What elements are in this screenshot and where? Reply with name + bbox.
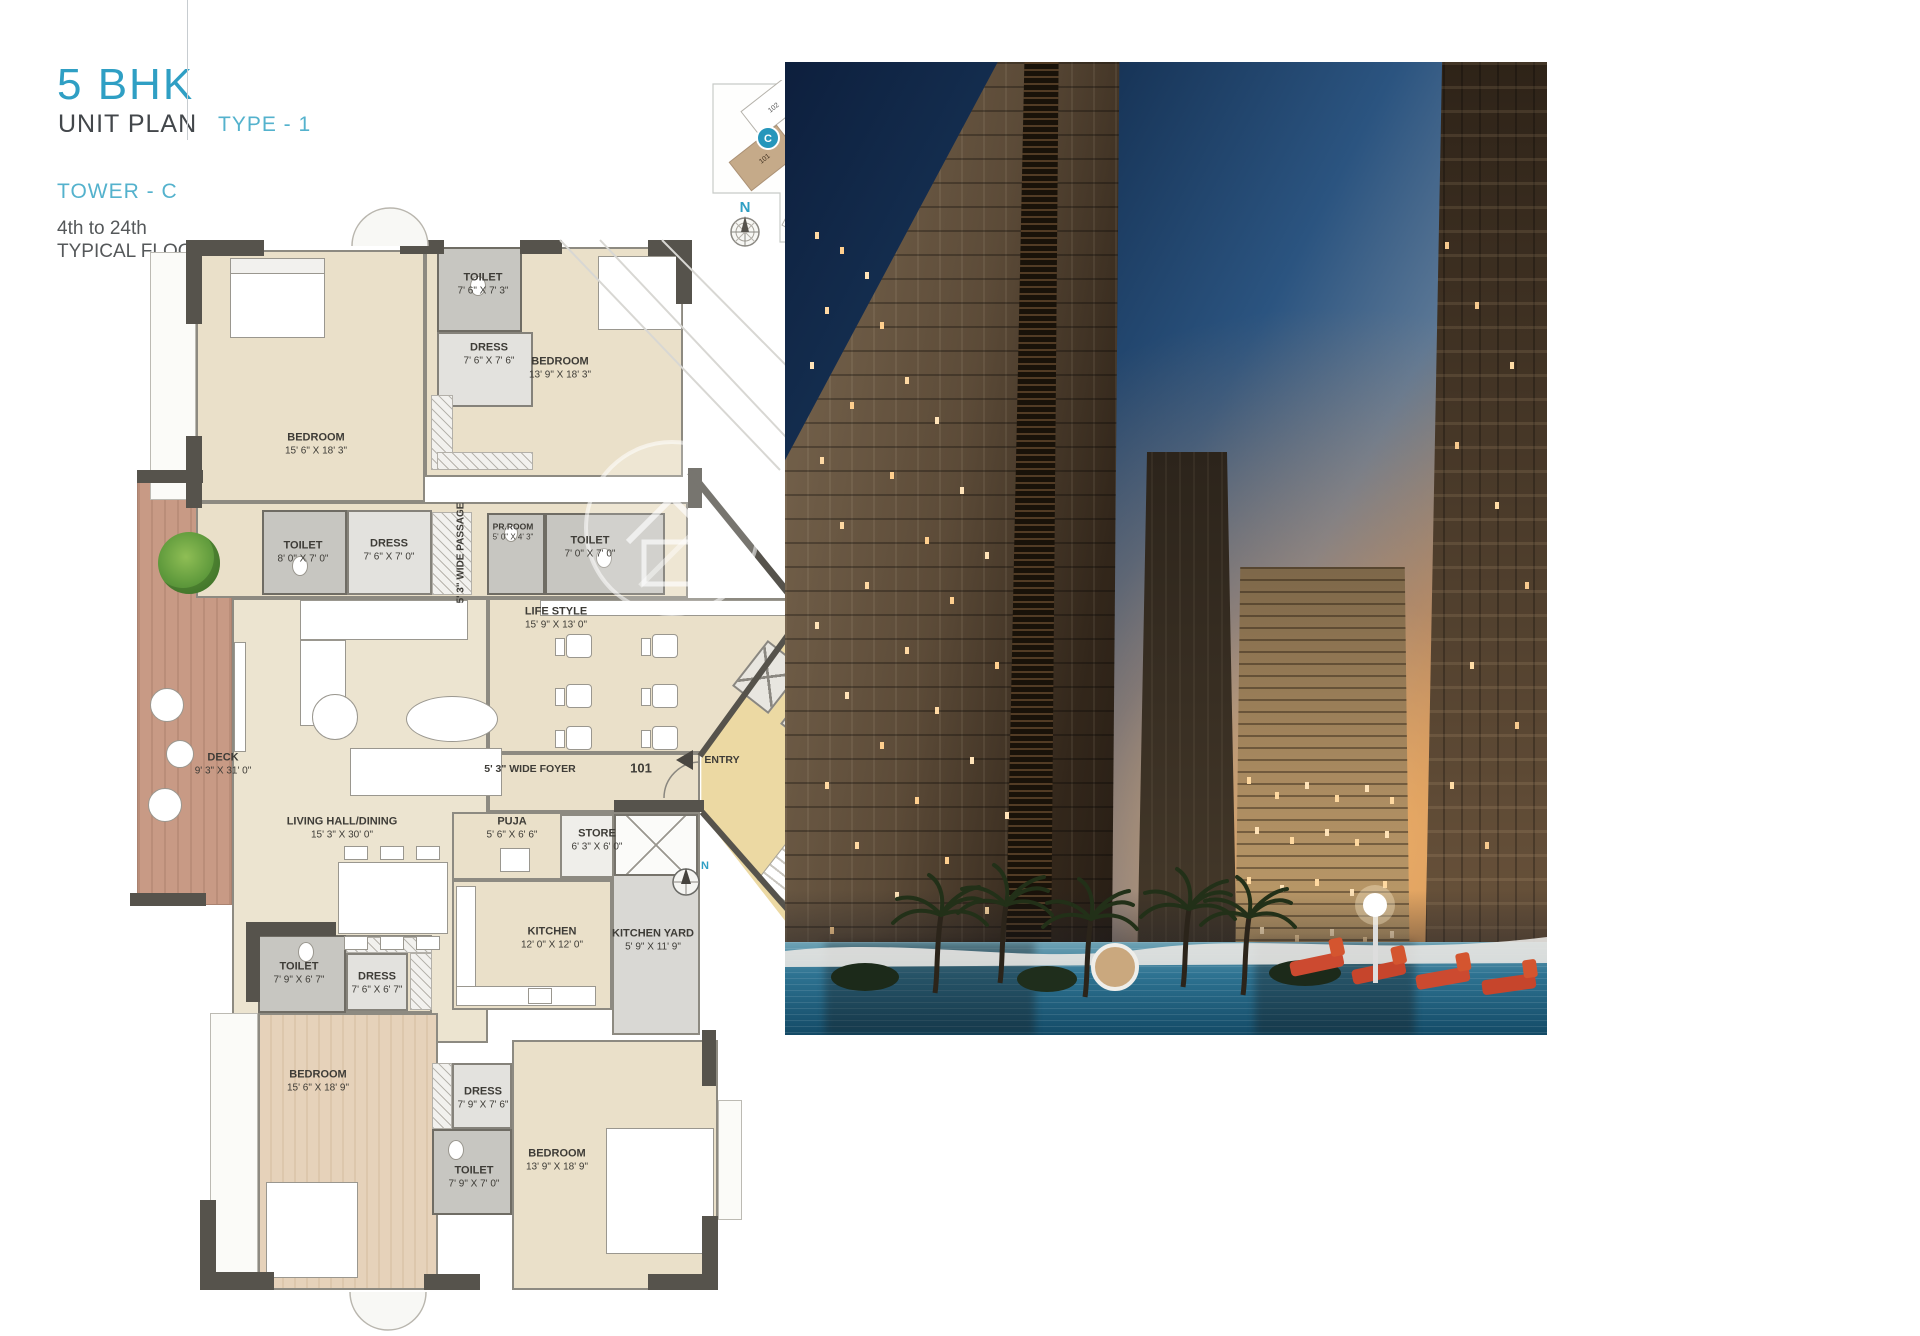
room-dims: 7' 6" X 7' 0" <box>364 551 415 564</box>
room-dims: 7' 9" X 7' 0" <box>449 1178 500 1191</box>
shaft-xbox <box>614 814 698 876</box>
page-title: 5 BHK <box>57 60 194 110</box>
room-name: STORE <box>572 826 623 840</box>
photo-lit-windows <box>785 62 789 69</box>
label-lifestyle: LIFE STYLE 15' 9" X 13' 0" <box>525 604 587 631</box>
label-bedroom-topleft: BEDROOM 15' 6" X 18' 3" <box>285 430 347 457</box>
room-dims: 5' 0" X 4' 3" <box>493 532 534 542</box>
label-toilet-bottommid: TOILET 7' 9" X 7' 0" <box>449 1163 500 1190</box>
floor-range-label: 4th to 24th <box>57 218 147 240</box>
page-subtitle: UNIT PLAN <box>58 110 197 139</box>
brochure-page: 5 BHK UNIT PLAN TYPE - 1 TOWER - C 4th t… <box>0 0 1920 1336</box>
room-name: DECK <box>195 750 252 764</box>
type-label: TYPE - 1 <box>218 113 311 137</box>
label-toilet-midright: TOILET 7' 0" X 7' 0" <box>565 533 616 560</box>
label-foyer: 5' 3" WIDE FOYER <box>484 763 576 775</box>
label-passage: 5' 3" WIDE PASSAGE <box>456 503 467 604</box>
label-deck: DECK 9' 3" X 31' 0" <box>195 750 252 777</box>
deck-tree <box>158 532 220 594</box>
room-dims: 13' 9" X 18' 9" <box>526 1161 588 1174</box>
label-kitchen: KITCHEN 12' 0" X 12' 0" <box>521 924 583 951</box>
tower-c-badge-label: C <box>764 133 772 145</box>
room-name: TOILET <box>458 270 509 284</box>
room-name: BEDROOM <box>285 430 347 444</box>
entry-arrow-icon <box>676 750 693 770</box>
coffee-table <box>406 696 498 742</box>
room-name: TOILET <box>278 538 329 552</box>
keyplan-compass-icon: N <box>731 199 759 246</box>
balcony-strip <box>210 1013 258 1290</box>
room-dims: 7' 6" X 7' 3" <box>458 285 509 298</box>
dining-table <box>338 862 448 934</box>
label-dress-top: DRESS 7' 6" X 7' 6" <box>464 340 515 367</box>
lifestyle-chair <box>566 684 592 708</box>
deck-chair <box>166 740 194 768</box>
photo-foreground <box>785 715 1547 1035</box>
tv-unit <box>234 642 246 752</box>
room-name: LIFE STYLE <box>525 604 587 618</box>
label-dress-bottomleft: DRESS 7' 6" X 6' 7" <box>352 969 403 996</box>
label-bedroom-bottomright: BEDROOM 13' 9" X 18' 9" <box>526 1146 588 1173</box>
dining-chair <box>416 936 440 950</box>
window-bay <box>718 1100 742 1220</box>
room-name: PUJA <box>487 814 538 828</box>
tower-rendering-photo <box>785 62 1547 1035</box>
dining-chair <box>344 936 368 950</box>
room-dims: 7' 9" X 6' 7" <box>274 974 325 987</box>
room-name: PR.ROOM <box>493 521 534 532</box>
room-dims: 13' 9" X 18' 3" <box>529 369 591 382</box>
room-name: KITCHEN YARD <box>607 926 699 940</box>
sofa <box>350 748 502 796</box>
room-dims: 7' 0" X 7' 0" <box>565 548 616 561</box>
room-dims: 15' 9" X 13' 0" <box>525 619 587 632</box>
dining-chair <box>344 846 368 860</box>
label-store: STORE 6' 3" X 6' 0" <box>572 826 623 853</box>
label-prroom: PR.ROOM 5' 0" X 4' 3" <box>493 521 534 542</box>
room-dims: 7' 6" X 6' 7" <box>352 984 403 997</box>
dining-chair <box>380 936 404 950</box>
puja-shrine <box>500 848 530 872</box>
bed-pillows <box>230 258 325 274</box>
room-dims: 7' 6" X 7' 6" <box>464 355 515 368</box>
room-dims: 6' 3" X 6' 0" <box>572 841 623 854</box>
room-dims: 8' 0" X 7' 0" <box>278 553 329 566</box>
label-dress-bottommid: DRESS 7' 9" X 7' 6" <box>458 1084 509 1111</box>
curved-balcony-top <box>352 208 428 246</box>
room-name: TOILET <box>274 959 325 973</box>
unit-number: 101 <box>630 761 652 776</box>
label-kitchen-yard: KITCHEN YARD 5' 9" X 11' 9" <box>607 926 699 953</box>
label-toilet-bottomleft: TOILET 7' 9" X 6' 7" <box>274 959 325 986</box>
lifestyle-chair <box>566 726 592 750</box>
room-name: TOILET <box>565 533 616 547</box>
curved-balcony-bottom <box>350 1292 426 1330</box>
room-dims: 15' 6" X 18' 3" <box>285 445 347 458</box>
bed <box>606 1128 714 1254</box>
dining-chair <box>416 846 440 860</box>
room-name: LIVING HALL/DINING <box>287 814 398 828</box>
bed <box>598 256 682 330</box>
room-name: DRESS <box>364 536 415 550</box>
wc-fixture <box>448 1140 464 1160</box>
bed <box>266 1182 358 1278</box>
balcony-strip <box>150 252 196 500</box>
room-dims: 12' 0" X 12' 0" <box>521 939 583 952</box>
foyer <box>488 753 700 812</box>
label-dress-midleft: DRESS 7' 6" X 7' 0" <box>364 536 415 563</box>
lifestyle-chair <box>652 726 678 750</box>
pool-edge <box>785 937 1547 967</box>
room-name: BEDROOM <box>529 354 591 368</box>
wardrobe-hatch <box>432 1063 452 1129</box>
room-name: BEDROOM <box>526 1146 588 1160</box>
stove <box>528 988 552 1004</box>
room-dims: 5' 9" X 11' 9" <box>607 941 699 954</box>
wardrobe-hatch <box>410 953 432 1010</box>
wardrobe-hatch <box>437 452 533 470</box>
room-dims: 5' 6" X 6' 6" <box>487 829 538 842</box>
room-name: DRESS <box>458 1084 509 1098</box>
label-bedroom-bottomleft: BEDROOM 15' 6" X 18' 9" <box>287 1067 349 1094</box>
room-name: BEDROOM <box>287 1067 349 1081</box>
room-name: KITCHEN <box>521 924 583 938</box>
lifestyle-chair <box>652 634 678 658</box>
room-name: DRESS <box>352 969 403 983</box>
lifestyle-chair <box>566 634 592 658</box>
label-bedroom-topright: BEDROOM 13' 9" X 18' 3" <box>529 354 591 381</box>
pool-planter <box>1093 945 1137 989</box>
label-puja: PUJA 5' 6" X 6' 6" <box>487 814 538 841</box>
room-name: TOILET <box>449 1163 500 1177</box>
label-toilet-midleft: TOILET 8' 0" X 7' 0" <box>278 538 329 565</box>
label-entry: ENTRY <box>704 754 739 766</box>
keyplan-compass-n: N <box>740 199 751 216</box>
sofa <box>300 600 468 640</box>
side-table <box>312 694 358 740</box>
photo-lit-windows <box>1235 567 1239 574</box>
room-name: DRESS <box>464 340 515 354</box>
photo-lit-windows <box>1425 62 1429 69</box>
tower-label: TOWER - C <box>57 180 178 204</box>
dining-chair <box>380 846 404 860</box>
deck-chair <box>150 688 184 722</box>
room-dims: 15' 3" X 30' 0" <box>287 829 398 842</box>
deck-chair <box>148 788 182 822</box>
room-dims: 9' 3" X 31' 0" <box>195 765 252 778</box>
palm-tree <box>1141 869 1235 987</box>
kitchen-counter <box>456 986 596 1006</box>
lifestyle-chair <box>652 684 678 708</box>
label-living: LIVING HALL/DINING 15' 3" X 30' 0" <box>287 814 398 841</box>
room-dims: 15' 6" X 18' 9" <box>287 1082 349 1095</box>
palm-tree <box>893 875 987 993</box>
plan-compass-n: N <box>701 860 709 872</box>
label-toilet-top: TOILET 7' 6" X 7' 3" <box>458 270 509 297</box>
room-dims: 7' 9" X 7' 6" <box>458 1099 509 1112</box>
header-divider <box>187 0 188 140</box>
